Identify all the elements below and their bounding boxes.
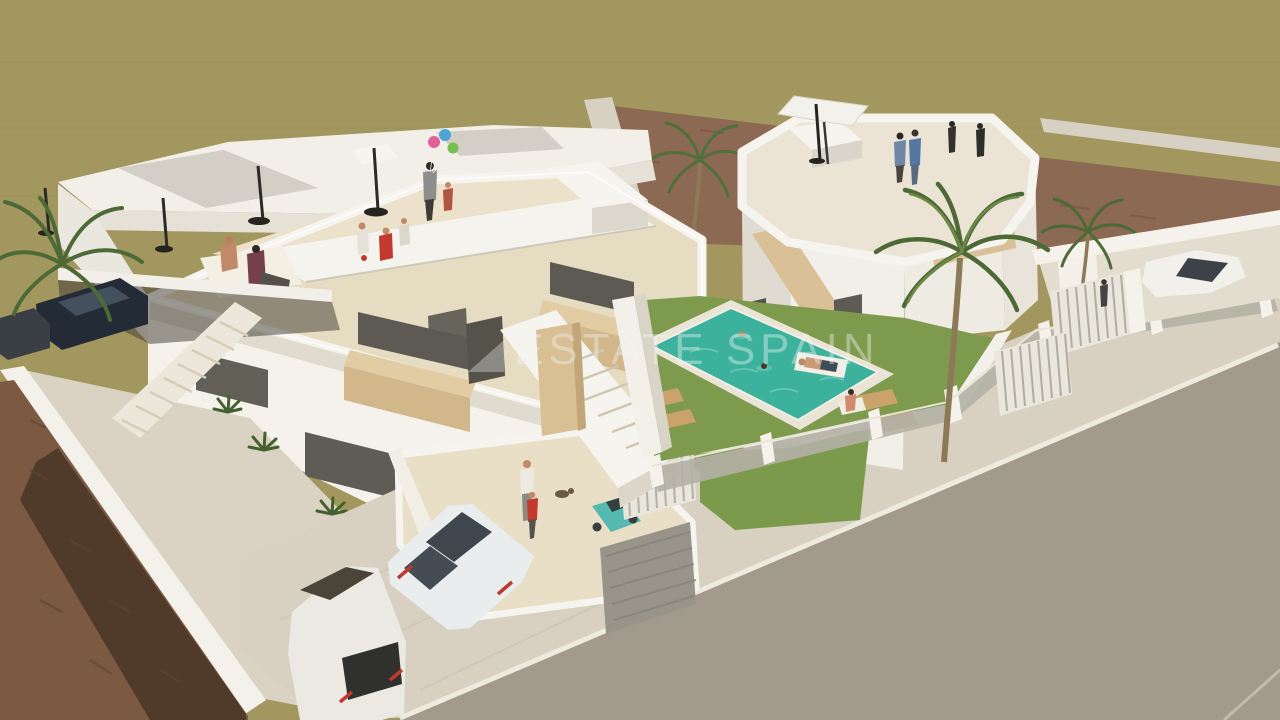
roof-man-body [909, 138, 921, 166]
swimmer-2-head [761, 363, 767, 369]
roof-woman-head [897, 133, 904, 140]
courtyard-man-head [523, 460, 531, 468]
seated-woman-head [252, 245, 260, 253]
right-property-figure-body [1100, 284, 1108, 307]
parasol-base-3 [155, 246, 173, 253]
roof-figure-2-head [977, 123, 983, 129]
float-man-head [799, 359, 806, 366]
swimmer-1-head [739, 331, 745, 337]
seated-man-head [225, 236, 233, 244]
courtyard-child-head [529, 492, 535, 498]
roof-figure-2-body [976, 128, 985, 157]
balloon-boy-body [443, 188, 453, 211]
roof-man-head [912, 130, 919, 137]
kid-striped-body [357, 229, 369, 255]
kid-red-body [379, 233, 393, 261]
kid-small-head [401, 218, 407, 224]
roof-woman-body [894, 140, 906, 167]
courtyard-child-body [527, 498, 538, 522]
kid-striped-head [359, 223, 366, 230]
right-roof-parasol-base [809, 158, 825, 164]
roof-figure-1-body [948, 126, 956, 153]
kid-red-head [383, 228, 390, 235]
red-toy [361, 255, 367, 261]
stair-doorway [466, 316, 505, 384]
grass-sitting-woman [845, 394, 856, 412]
parasol-base-1 [248, 217, 270, 225]
render-scene [0, 0, 1280, 720]
right-property-figure-head [1101, 279, 1107, 285]
balloon-pink [428, 136, 440, 148]
seated-man-torso [220, 242, 238, 272]
dog-body [555, 490, 569, 498]
balloon-boy-head [445, 182, 451, 188]
balloon-woman-body [423, 170, 437, 202]
render-viewport: ESTATE SPAIN [0, 0, 1280, 720]
kid-small-body [399, 224, 410, 246]
scooter-wheel-1 [593, 523, 602, 532]
roof-figure-1-head [949, 121, 955, 127]
courtyard-man-torso [520, 468, 534, 496]
dog-head [568, 488, 574, 494]
balloon-green [448, 143, 459, 154]
parasol-base-2 [364, 208, 388, 217]
grass-sitting-woman-head [848, 389, 854, 395]
balloon-blue [439, 129, 451, 141]
